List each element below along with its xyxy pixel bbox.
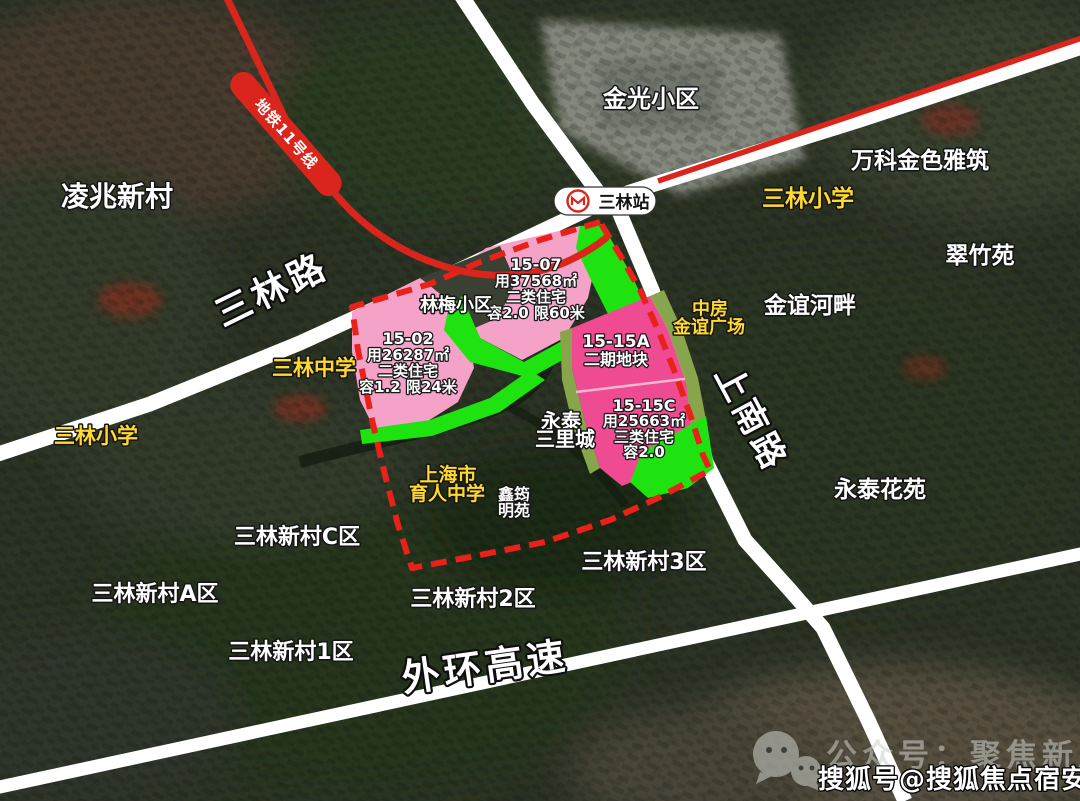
label-jinyi-hepan: 金谊河畔	[763, 292, 856, 319]
map-canvas: 地铁11号线 三林站 三林路 上南路 外环高速 15-07 用37568㎡ 二类…	[0, 0, 1080, 801]
label-sanlin-primary-east: 三林小学	[762, 185, 854, 212]
label-xinyun-2: 明苑	[498, 501, 530, 520]
label-zhongfang-2: 金谊广场	[672, 316, 745, 338]
label-yuren-2: 育人中学	[409, 482, 485, 505]
station-label: 三林站	[599, 192, 650, 213]
label-jinguang: 金光小区	[602, 85, 699, 113]
svg-text:容2.0 限60米: 容2.0 限60米	[486, 304, 586, 322]
svg-text:15-15A: 15-15A	[582, 332, 650, 352]
svg-text:二期地块: 二期地块	[584, 350, 649, 369]
label-sanlin-primary-west: 三林小学	[54, 424, 138, 448]
metro-logo-icon	[568, 191, 589, 212]
station-badge: 三林站	[554, 187, 656, 215]
label-linmei: 林梅小区	[420, 294, 492, 316]
satellite-planning-map: 地铁11号线 三林站 三林路 上南路 外环高速 15-07 用37568㎡ 二类…	[0, 0, 1080, 801]
svg-text:容1.2 限24米: 容1.2 限24米	[358, 378, 458, 396]
label-xincun-1: 三林新村1区	[228, 639, 353, 665]
label-lingzhao: 凌兆新村	[61, 180, 173, 213]
label-sanlin-middle: 三林中学	[272, 356, 356, 380]
label-vanke: 万科金色雅筑	[851, 147, 989, 174]
label-xincun-c: 三林新村C区	[234, 524, 360, 550]
label-xincun-a: 三林新村A区	[91, 581, 218, 607]
svg-text:容2.0: 容2.0	[622, 443, 665, 461]
label-yongtai-huayuan: 永泰花苑	[834, 476, 926, 503]
label-yongtai-2: 三里城	[535, 427, 595, 451]
label-xincun-2: 三林新村2区	[410, 586, 535, 612]
label-xincun-3: 三林新村3区	[581, 549, 706, 575]
parcel-label-15-15A: 15-15A 二期地块	[582, 332, 650, 369]
label-cuizhuyuan: 翠竹苑	[946, 242, 1015, 269]
sohu-watermark: 搜狐号@搜狐焦点宿安站	[818, 764, 1080, 795]
